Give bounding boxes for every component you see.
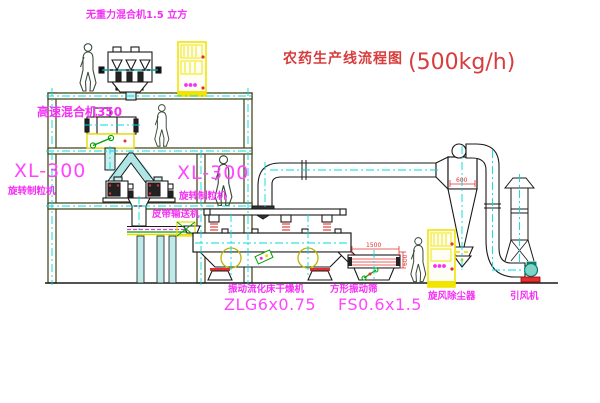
belt-conveyor-drawing: [127, 227, 198, 284]
control-cabinet-right: [428, 230, 455, 287]
title-capacity: (500kg/h): [408, 50, 515, 75]
label-granulator-left-name: 旋转制粒机: [8, 187, 56, 197]
indicator-dots: [184, 83, 188, 87]
worker-figure-sieve: [411, 238, 426, 282]
title-text: 农药生产线流程图: [283, 51, 403, 67]
label-sieve-model: FS0.6x1.5: [338, 297, 422, 313]
label-gravity-mixer: 无重力混合机1.5 立方: [86, 11, 187, 21]
square-sieve-drawing: 1500 600: [348, 242, 409, 280]
sieve-height-dim: 600: [402, 254, 409, 266]
label-granulator-left-model: XL-300: [14, 162, 86, 181]
worker-figure-top: [80, 44, 96, 91]
label-dryer-model: ZLG6x0.75: [224, 297, 316, 313]
label-high-speed-mixer: 高速混合机350: [37, 106, 122, 118]
label-granulator-right-name: 旋转制粒机: [179, 192, 227, 202]
diagram-title: 农药生产线流程图 (500kg/h): [283, 48, 515, 75]
label-cyclone: 旋风除尘器: [428, 292, 476, 302]
label-dryer-name: 振动流化床干燥机: [228, 285, 304, 295]
spring-hangers: [209, 215, 332, 230]
label-fan: 引风机: [510, 292, 539, 302]
label-granulator-right-model: XL-300: [177, 164, 249, 183]
process-flow-diagram: 1500 600 600: [0, 0, 600, 403]
worker-figure-second-floor: [155, 105, 169, 147]
label-sieve-name: 方形振动筛: [330, 285, 378, 295]
sieve-length-dim: 1500: [366, 242, 381, 249]
gravity-free-mixer-drawing: [99, 47, 161, 100]
label-belt-conveyor: 皮带输送机: [152, 210, 200, 220]
control-cabinet-top: [178, 42, 206, 96]
